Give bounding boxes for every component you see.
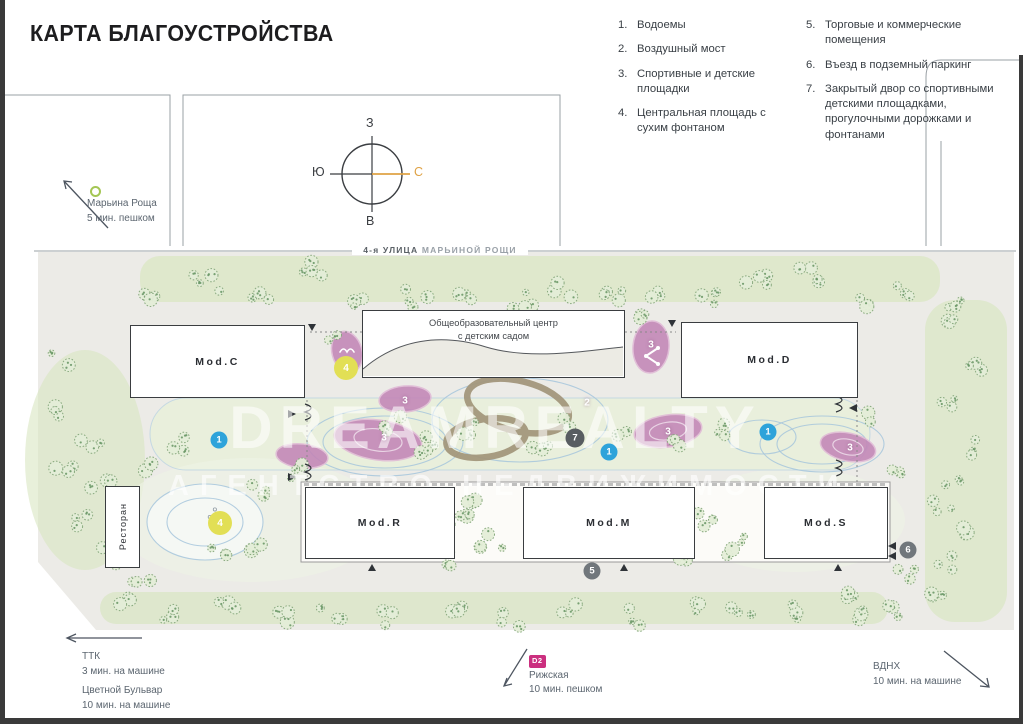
street-label: 4-я УЛИЦА МАРЬИНОЙ РОЩИ (352, 245, 528, 255)
note-vdnh: ВДНХ 10 мин. на машине (873, 660, 961, 689)
legend-text: Центральная площадь с сухим фонтаном (637, 106, 783, 137)
map-marker-4: 4 (334, 356, 358, 380)
legend-column-1: 1.Водоемы2.Воздушный мост3.Спортивные и … (618, 18, 783, 146)
watermark-big: DREAMREALTY (208, 393, 783, 462)
map-marker-3: 3 (643, 337, 660, 354)
legend-text: Воздушный мост (637, 42, 726, 57)
compass-label-east: В (366, 214, 374, 228)
legend-column-2: 5.Торговые и коммерческие помещения6.Въе… (806, 18, 1006, 152)
page-edge-bottom (0, 718, 1023, 724)
legend-number: 5. (806, 18, 825, 49)
legend-item: 3.Спортивные и детские площадки (618, 67, 783, 98)
legend-text: Водоемы (637, 18, 686, 33)
map-marker-2: 2 (579, 395, 596, 412)
legend-number: 6. (806, 58, 825, 73)
legend-text: Закрытый двор со спортивными детскими пл… (825, 82, 1006, 143)
building-mod-m: Mod.M (523, 487, 695, 559)
legend-number: 3. (618, 67, 637, 98)
page-title: КАРТА БЛАГОУСТРОЙСТВА (30, 20, 334, 47)
page-edge-left (0, 0, 5, 724)
page-edge-right (1019, 55, 1023, 724)
map-marker-1: 1 (601, 444, 618, 461)
watermark-small: АГЕНТСТВО НЕДВИЖИМОСТИ (168, 470, 849, 503)
map-marker-6: 6 (900, 542, 917, 559)
building-mod-s: Mod.S (764, 487, 888, 559)
legend-number: 1. (618, 18, 637, 33)
map-marker-3: 3 (376, 430, 393, 447)
building-mod-r: Mod.R (305, 487, 455, 559)
building-mod-c: Mod.C (130, 325, 305, 398)
legend-item: 5.Торговые и коммерческие помещения (806, 18, 1006, 49)
map-marker-1: 1 (211, 432, 228, 449)
legend-item: 6.Въезд в подземный паркинг (806, 58, 1006, 73)
legend-number: 4. (618, 106, 637, 137)
map-marker-5: 5 (584, 563, 601, 580)
map-marker-3: 3 (660, 424, 677, 441)
legend-item: 7.Закрытый двор со спортивными детскими … (806, 82, 1006, 143)
legend-item: 2.Воздушный мост (618, 42, 783, 57)
building-restaurant: Ресторан (105, 486, 140, 568)
compass-label-west: З (366, 116, 374, 130)
compass-label-north: С (414, 165, 423, 179)
note-maryina-roshcha: Марьина Роща 5 мин. пешком (87, 197, 157, 226)
legend-text: Торговые и коммерческие помещения (825, 18, 1006, 49)
map-marker-3: 3 (397, 393, 414, 410)
legend-number: 7. (806, 82, 825, 143)
map-marker-1: 1 (760, 424, 777, 441)
note-rizhskaya: D2 Рижская 10 мин. пешком (529, 654, 602, 698)
compass-rose (330, 136, 410, 212)
metro-icon (90, 186, 101, 197)
building-mod-d: Mod.D (681, 322, 858, 398)
legend-text: Въезд в подземный паркинг (825, 58, 971, 73)
building-school: Общеобразовательный центр с детским садо… (362, 310, 625, 378)
building-label: Общеобразовательный центр с детским садо… (363, 317, 624, 342)
map-marker-4: 4 (208, 511, 232, 535)
map-marker-3: 3 (842, 440, 859, 457)
d2-line-badge: D2 (529, 655, 546, 668)
legend-number: 2. (618, 42, 637, 57)
legend-item: 4.Центральная площадь с сухим фонтаном (618, 106, 783, 137)
compass-label-south: Ю (312, 165, 325, 179)
legend-text: Спортивные и детские площадки (637, 67, 783, 98)
legend-item: 1.Водоемы (618, 18, 783, 33)
map-marker-7: 7 (566, 429, 585, 448)
note-ttk: ТТК 3 мин. на машине (82, 650, 165, 679)
landscaping-map-page: DREAMREALTY АГЕНТСТВО НЕДВИЖИМОСТИ КАРТА… (0, 0, 1023, 724)
note-tsvetnoy-bulvar: Цветной Бульвар 10 мин. на машине (82, 684, 170, 713)
